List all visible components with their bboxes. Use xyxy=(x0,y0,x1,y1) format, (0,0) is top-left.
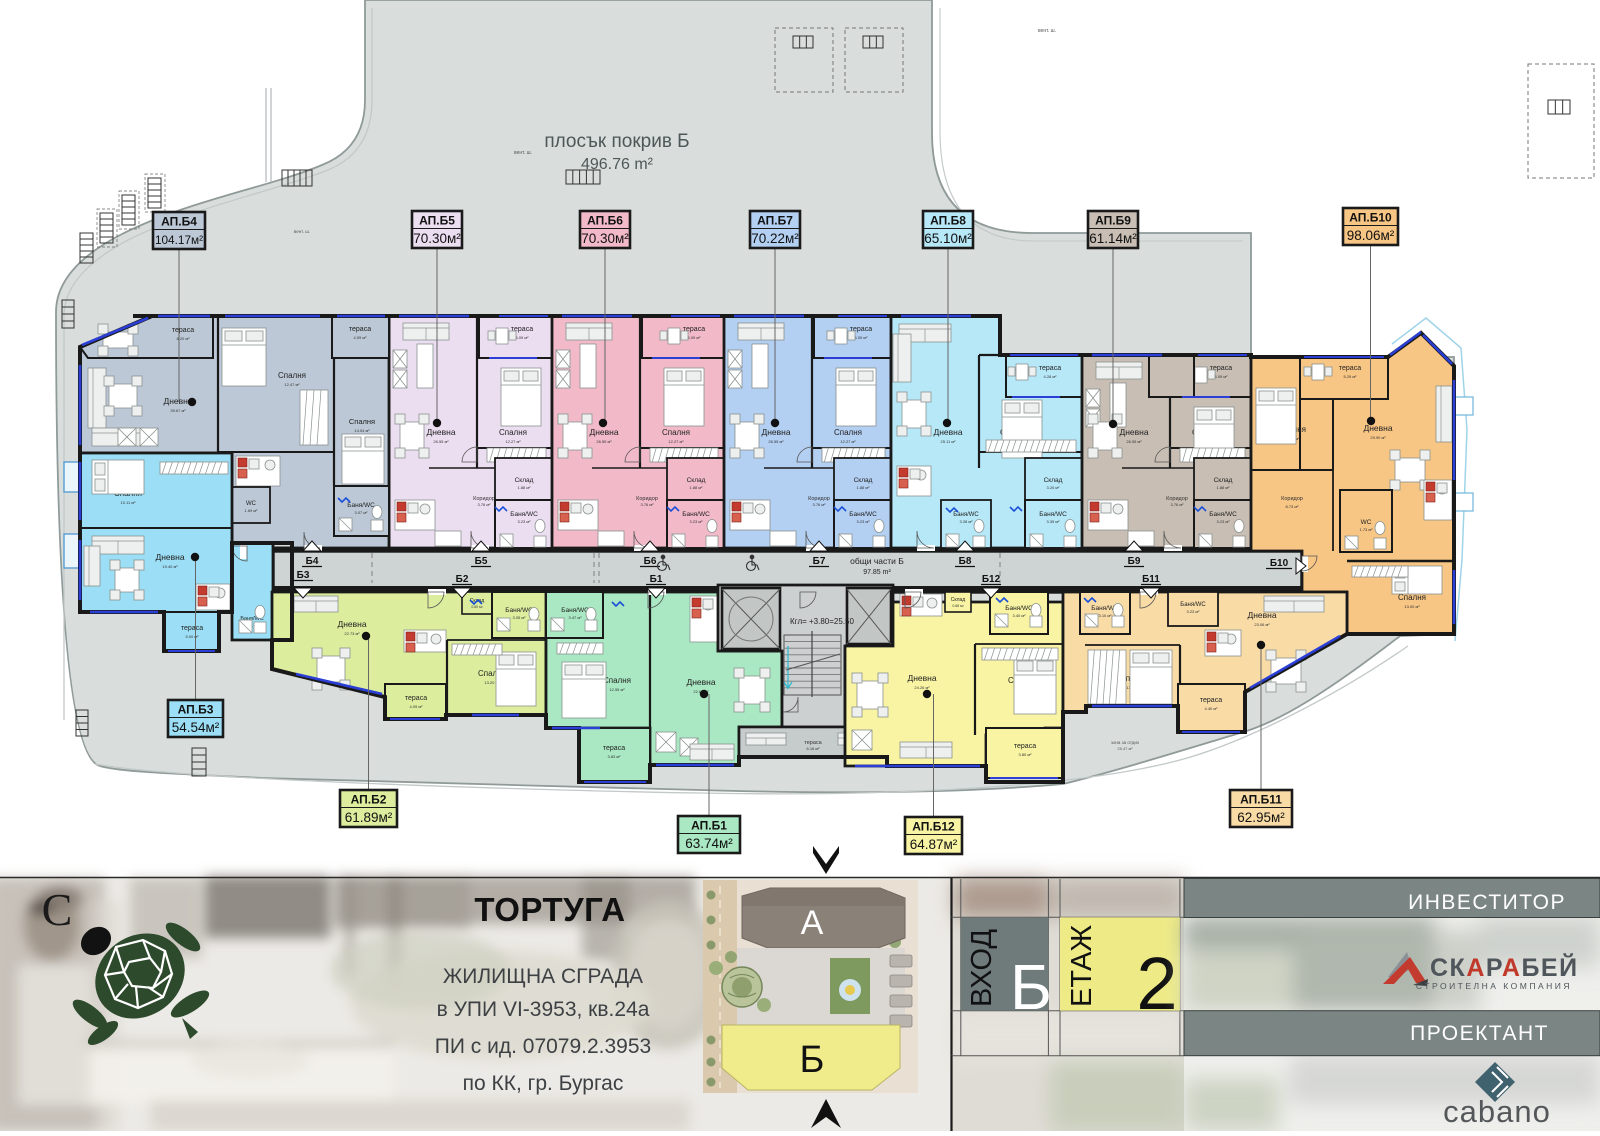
svg-text:Б9: Б9 xyxy=(1128,556,1141,567)
svg-text:23.06 м²: 23.06 м² xyxy=(1254,622,1270,627)
svg-text:СКАРАБЕЙ: СКАРАБЕЙ xyxy=(1430,952,1579,982)
svg-text:70.30м²: 70.30м² xyxy=(581,231,629,246)
svg-text:Б8: Б8 xyxy=(959,556,972,567)
svg-text:Б: Б xyxy=(1010,951,1052,1023)
svg-text:Б11: Б11 xyxy=(1142,574,1160,585)
svg-text:WC: WC xyxy=(1361,519,1372,526)
svg-text:Баня/WC: Баня/WC xyxy=(1209,511,1237,518)
svg-text:Б5: Б5 xyxy=(475,556,488,567)
svg-text:5.00 м²: 5.00 м² xyxy=(186,634,200,639)
svg-text:70.22м²: 70.22м² xyxy=(751,231,799,246)
svg-text:Баня/WC: Баня/WC xyxy=(561,607,589,614)
svg-text:4.28 м²: 4.28 м² xyxy=(1044,374,1058,379)
svg-text:АП.Б2: АП.Б2 xyxy=(351,793,387,807)
svg-text:АП.Б6: АП.Б6 xyxy=(587,214,623,228)
svg-text:Спалня: Спалня xyxy=(349,417,375,426)
svg-text:Дневна: Дневна xyxy=(589,427,618,437)
svg-text:104.17м²: 104.17м² xyxy=(155,233,203,247)
svg-text:8.73 м²: 8.73 м² xyxy=(1286,504,1300,509)
svg-text:3.76 м²: 3.76 м² xyxy=(478,502,492,507)
svg-text:Баня/WC: Баня/WC xyxy=(1005,605,1033,612)
svg-text:Дневна: Дневна xyxy=(761,427,790,437)
svg-text:3.05 м²: 3.05 м² xyxy=(513,615,527,620)
svg-text:12.27 м²: 12.27 м² xyxy=(840,439,856,444)
svg-text:Баня/WC: Баня/WC xyxy=(682,511,710,518)
svg-text:62.95м²: 62.95м² xyxy=(1237,810,1285,825)
svg-text:Б3: Б3 xyxy=(297,570,310,581)
svg-text:Баня/WC: Баня/WC xyxy=(1180,602,1206,608)
svg-text:Б6: Б6 xyxy=(644,556,657,567)
svg-text:Б2: Б2 xyxy=(456,574,469,585)
svg-text:26.55 м²: 26.55 м² xyxy=(1126,439,1142,444)
svg-text:тераса: тераса xyxy=(181,625,203,632)
svg-text:Б1: Б1 xyxy=(650,574,663,585)
svg-text:Баня/WC: Баня/WC xyxy=(953,512,979,518)
svg-text:Дневна: Дневна xyxy=(907,673,936,683)
svg-text:3.23 м²: 3.23 м² xyxy=(1187,609,1201,614)
svg-text:ПРОЕКТАНТ: ПРОЕКТАНТ xyxy=(1410,1022,1549,1045)
svg-text:Спалня: Спалня xyxy=(662,428,690,437)
svg-text:3.76 м²: 3.76 м² xyxy=(813,502,827,507)
svg-text:0.60 м²: 0.60 м² xyxy=(471,605,483,609)
svg-text:61.89м²: 61.89м² xyxy=(345,810,393,825)
svg-text:зона за отдих: зона за отдих xyxy=(1111,740,1140,745)
svg-text:ИНВЕСТИТОР: ИНВЕСТИТОР xyxy=(1408,891,1566,914)
svg-text:4.09 м²: 4.09 м² xyxy=(688,335,702,340)
svg-text:Дневна: Дневна xyxy=(337,619,366,629)
svg-text:С: С xyxy=(42,884,73,935)
svg-text:Баня/WC: Баня/WC xyxy=(347,502,375,509)
svg-text:3.07 м²: 3.07 м² xyxy=(355,510,369,515)
svg-text:22.73 м²: 22.73 м² xyxy=(344,631,360,636)
svg-text:4.09 м²: 4.09 м² xyxy=(855,335,869,340)
svg-text:в УПИ VI-3953, кв.24а: в УПИ VI-3953, кв.24а xyxy=(437,998,650,1021)
svg-text:Б4: Б4 xyxy=(306,556,319,567)
svg-text:Баня/WC: Баня/WC xyxy=(510,511,538,518)
svg-text:4.09 м²: 4.09 м² xyxy=(354,335,368,340)
svg-text:4.09 м²: 4.09 м² xyxy=(516,335,530,340)
svg-text:64.87м²: 64.87м² xyxy=(910,837,958,852)
svg-text:ТОРТУГА: ТОРТУГА xyxy=(474,891,625,928)
svg-text:3.10 м²: 3.10 м² xyxy=(1099,613,1113,618)
svg-text:3.80 м²: 3.80 м² xyxy=(1019,752,1033,757)
svg-text:Спалня: Спалня xyxy=(499,428,527,437)
svg-text:Дневна: Дневна xyxy=(155,552,184,562)
svg-text:4.40 м²: 4.40 м² xyxy=(1205,706,1219,711)
svg-text:5.29 м²: 5.29 м² xyxy=(1344,374,1358,379)
svg-text:1.88 м²: 1.88 м² xyxy=(1217,485,1231,490)
svg-text:14.04 м²: 14.04 м² xyxy=(354,428,370,433)
svg-text:Коридор: Коридор xyxy=(1281,496,1303,502)
svg-text:0.68 м²: 0.68 м² xyxy=(952,604,964,608)
svg-text:1.69 м²: 1.69 м² xyxy=(245,508,259,513)
svg-text:Б: Б xyxy=(800,1039,825,1081)
svg-text:4.09 м²: 4.09 м² xyxy=(1215,374,1229,379)
svg-text:3.23 м²: 3.23 м² xyxy=(690,519,704,524)
svg-text:плосък покрив Б: плосък покрив Б xyxy=(544,131,689,152)
svg-text:ЕТАЖ: ЕТАЖ xyxy=(1066,925,1098,1007)
svg-text:ПИ с ид. 07079.2.3953: ПИ с ид. 07079.2.3953 xyxy=(435,1035,651,1058)
svg-text:3.23 м²: 3.23 м² xyxy=(1217,519,1231,524)
svg-text:вент. ш.: вент. ш. xyxy=(514,150,532,156)
svg-text:Склад: Склад xyxy=(687,477,706,484)
svg-text:70.30м²: 70.30м² xyxy=(413,231,461,246)
svg-text:39.67 м²: 39.67 м² xyxy=(170,408,186,413)
svg-text:Дневна: Дневна xyxy=(426,427,455,437)
svg-text:3.83 м²: 3.83 м² xyxy=(608,754,622,759)
svg-text:13.00 м²: 13.00 м² xyxy=(1404,604,1420,609)
svg-text:12.47 м²: 12.47 м² xyxy=(284,382,300,387)
svg-text:АП.Б10: АП.Б10 xyxy=(1349,211,1392,225)
svg-text:3.76 м²: 3.76 м² xyxy=(641,502,655,507)
svg-text:4.09 м²: 4.09 м² xyxy=(410,704,424,709)
svg-text:А: А xyxy=(801,904,824,942)
svg-text:Склад: Склад xyxy=(515,477,534,484)
svg-text:26.55 м²: 26.55 м² xyxy=(596,439,612,444)
svg-text:26.55 м²: 26.55 м² xyxy=(433,439,449,444)
svg-text:3.23 м²: 3.23 м² xyxy=(518,519,532,524)
svg-text:Спалня: Спалня xyxy=(834,428,862,437)
svg-text:по КК, гр. Бургас: по КК, гр. Бургас xyxy=(463,1072,624,1095)
svg-text:3.20 м²: 3.20 м² xyxy=(1047,485,1061,490)
svg-text:2: 2 xyxy=(1136,942,1177,1025)
svg-text:Б12: Б12 xyxy=(982,574,1001,585)
svg-text:АП.Б12: АП.Б12 xyxy=(912,820,955,834)
svg-text:65.10м²: 65.10м² xyxy=(924,231,972,246)
svg-text:ВХОД: ВХОД xyxy=(966,929,998,1007)
svg-text:3.47 м²: 3.47 м² xyxy=(569,615,583,620)
svg-text:12.55 м²: 12.55 м² xyxy=(609,687,625,692)
svg-text:тераса: тераса xyxy=(603,745,625,752)
svg-text:Дневна: Дневна xyxy=(686,677,715,687)
svg-text:54.54м²: 54.54м² xyxy=(172,720,220,735)
svg-text:3.39 м²: 3.39 м² xyxy=(1047,519,1061,524)
svg-text:25.11 м²: 25.11 м² xyxy=(941,439,957,444)
svg-text:Склад: Склад xyxy=(1214,477,1233,484)
svg-text:6.16 м²: 6.16 м² xyxy=(807,746,821,751)
svg-text:СТРОИТЕЛНА КОМПАНИЯ: СТРОИТЕЛНА КОМПАНИЯ xyxy=(1416,981,1572,991)
svg-text:3.40 м²: 3.40 м² xyxy=(1013,613,1027,618)
svg-text:тераса: тераса xyxy=(405,695,427,702)
svg-text:1.88 м²: 1.88 м² xyxy=(857,485,871,490)
svg-text:Склад: Склад xyxy=(1044,477,1063,484)
svg-text:24.26 м²: 24.26 м² xyxy=(914,685,930,690)
svg-text:10.11 м²: 10.11 м² xyxy=(121,500,137,505)
svg-text:тераса: тераса xyxy=(172,327,194,334)
svg-text:АП.Б4: АП.Б4 xyxy=(161,215,197,229)
svg-text:ЖИЛИЩНА СГРАДА: ЖИЛИЩНА СГРАДА xyxy=(443,965,643,988)
svg-text:1.88 м²: 1.88 м² xyxy=(518,485,532,490)
svg-text:АП.Б5: АП.Б5 xyxy=(419,214,455,228)
svg-text:тераса: тераса xyxy=(1200,697,1222,704)
svg-text:1.88 м²: 1.88 м² xyxy=(690,485,704,490)
svg-text:Склад: Склад xyxy=(854,477,873,484)
svg-text:тераса: тераса xyxy=(349,326,371,333)
svg-text:Баня/WC: Баня/WC xyxy=(849,511,877,518)
svg-text:3.28 м²: 3.28 м² xyxy=(960,519,974,524)
svg-text:АП.Б1: АП.Б1 xyxy=(691,819,727,833)
svg-text:19.40 м²: 19.40 м² xyxy=(162,564,178,569)
svg-text:Спалня: Спалня xyxy=(603,676,631,685)
svg-text:тераса: тераса xyxy=(1014,743,1036,750)
svg-text:97.85 m²: 97.85 m² xyxy=(863,569,891,576)
svg-text:Б10: Б10 xyxy=(1270,558,1289,569)
svg-text:Дневна: Дневна xyxy=(1119,427,1148,437)
svg-text:1.73 м²: 1.73 м² xyxy=(1360,527,1374,532)
svg-text:29.90 м²: 29.90 м² xyxy=(1370,435,1386,440)
svg-text:Дневна: Дневна xyxy=(933,427,962,437)
svg-text:61.14м²: 61.14м² xyxy=(1089,231,1137,246)
svg-text:Кгл= +3.80=25.50: Кгл= +3.80=25.50 xyxy=(790,617,854,626)
svg-text:вент. ш.: вент. ш. xyxy=(294,229,310,234)
svg-text:98.06м²: 98.06м² xyxy=(1347,228,1395,243)
svg-text:АП.Б3: АП.Б3 xyxy=(178,703,214,717)
svg-text:12.27 м²: 12.27 м² xyxy=(668,439,684,444)
svg-text:26.55 м²: 26.55 м² xyxy=(768,439,784,444)
svg-text:WC: WC xyxy=(246,501,257,507)
svg-text:тераса: тераса xyxy=(1039,365,1061,372)
svg-text:Б7: Б7 xyxy=(813,556,826,567)
svg-text:63.74м²: 63.74м² xyxy=(685,836,733,851)
svg-text:Дневна: Дневна xyxy=(1363,423,1392,433)
svg-text:АП.Б7: АП.Б7 xyxy=(757,214,793,228)
svg-text:тераса: тераса xyxy=(1339,365,1361,372)
svg-text:общи части Б: общи части Б xyxy=(850,556,904,566)
svg-text:3.23 м²: 3.23 м² xyxy=(857,519,871,524)
svg-text:Спалня: Спалня xyxy=(278,371,306,380)
svg-text:cabano: cabano xyxy=(1443,1094,1551,1129)
svg-text:Баня/WC: Баня/WC xyxy=(1039,511,1067,518)
svg-text:3.76 м²: 3.76 м² xyxy=(1171,502,1185,507)
svg-text:12.27 м²: 12.27 м² xyxy=(505,439,521,444)
svg-text:25.47 м²: 25.47 м² xyxy=(1117,746,1133,751)
svg-text:АП.Б9: АП.Б9 xyxy=(1095,214,1131,228)
svg-text:вент. ш.: вент. ш. xyxy=(1038,28,1056,34)
svg-text:АП.Б8: АП.Б8 xyxy=(930,214,966,228)
svg-text:АП.Б11: АП.Б11 xyxy=(1240,793,1282,807)
svg-text:Склад: Склад xyxy=(951,597,966,603)
